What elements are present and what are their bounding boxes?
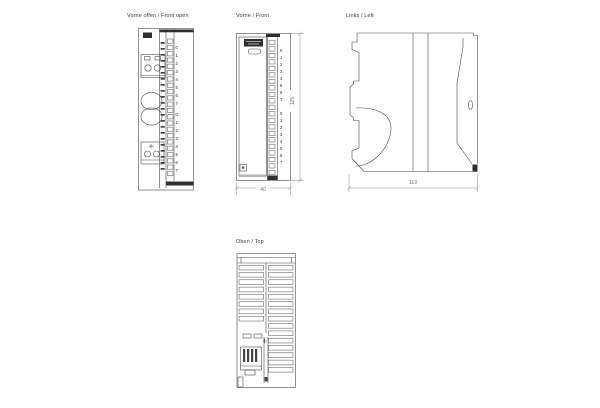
front-drawing [236,33,308,201]
snap-tab-right [254,334,262,338]
top-side-drawing [236,253,298,391]
casing-openings [141,92,162,125]
rail-side-outline [350,33,364,172]
foot-left [238,377,243,387]
view-title-top: Oben / Top [236,239,264,245]
door-hinge-foot [473,165,478,172]
bus-connector-foot [245,370,255,375]
front-door-outline [239,37,267,176]
channel-number: 4 [176,76,178,84]
channel-number: 2 [176,60,178,68]
channel-number: 5 [176,151,178,159]
left-side-drawing [348,33,484,195]
module-nameplate [143,33,152,39]
channel-number: 4 [280,75,282,82]
dimension-depth-label: 119 [402,180,424,186]
order-number-text-blur [239,175,266,178]
front-open-channel-numbers-bottom: 01234567 [176,111,178,175]
front-open-channel-numbers-top: 01234567 [176,44,178,108]
channel-number: 3 [176,135,178,143]
dimension-width-label: 40 [256,187,270,193]
channel-number: 4 [176,143,178,151]
channel-number: 5 [176,84,178,92]
channel-number: 0 [280,47,282,54]
vent-slats-right-column [267,322,295,373]
channel-number: 0 [280,110,282,117]
channel-number: 7 [280,96,282,103]
channel-number: 2 [280,61,282,68]
view-title-front: Vorne / Front [236,13,269,19]
door-latch-oval [469,101,473,110]
alignment-cross [263,339,268,343]
vent-slats-both-columns [239,264,295,322]
snap-tab-left [243,334,251,338]
channel-number: 7 [176,167,178,175]
front-open-drawing [138,28,196,192]
channel-number: 1 [176,52,178,60]
top-and-right-outline [357,33,478,164]
bottom-cap-bar [166,182,194,186]
mode-switch-dot [242,167,244,169]
top-cap-bar [160,30,194,33]
terminal-screw-column [160,40,166,172]
channel-number: 2 [176,127,178,135]
led-window-column [268,39,275,176]
front-channel-numbers-bottom: 01234567 [280,110,282,166]
product-nameplate [244,39,263,47]
led-window-column [167,38,174,177]
channel-number: 3 [280,131,282,138]
view-title-left: Links / Left [346,13,374,19]
top-cap-bar [266,34,280,37]
rail-clip-bump [356,108,391,166]
channel-number: 6 [176,159,178,167]
view-title-front-open: Vorne offen / Front open [127,13,189,19]
channel-number: 6 [280,89,282,96]
channel-number: 0 [176,111,178,119]
channel-number: 6 [280,152,282,159]
front-channel-numbers-top: 01234567 [280,47,282,103]
channel-number: 4 [280,138,282,145]
channel-number: 0 [176,44,178,52]
channel-number: 1 [176,119,178,127]
channel-number: 1 [280,117,282,124]
channel-number: 6 [176,92,178,100]
channel-number: 2 [280,124,282,131]
channel-number: 3 [176,68,178,76]
door-window [249,49,261,54]
channel-number: 7 [280,159,282,166]
channel-number: 3 [280,68,282,75]
channel-number: 7 [176,100,178,108]
module-outline [237,34,291,181]
channel-number: 1 [280,54,282,61]
channel-number: 5 [280,145,282,152]
dimension-drawing-page: { "drawing": { "subject": "module-dimens… [0,0,600,408]
bottom-cap-bar [268,176,278,181]
channel-number: 5 [280,82,282,89]
dimension-height-label: 125 [290,90,296,112]
